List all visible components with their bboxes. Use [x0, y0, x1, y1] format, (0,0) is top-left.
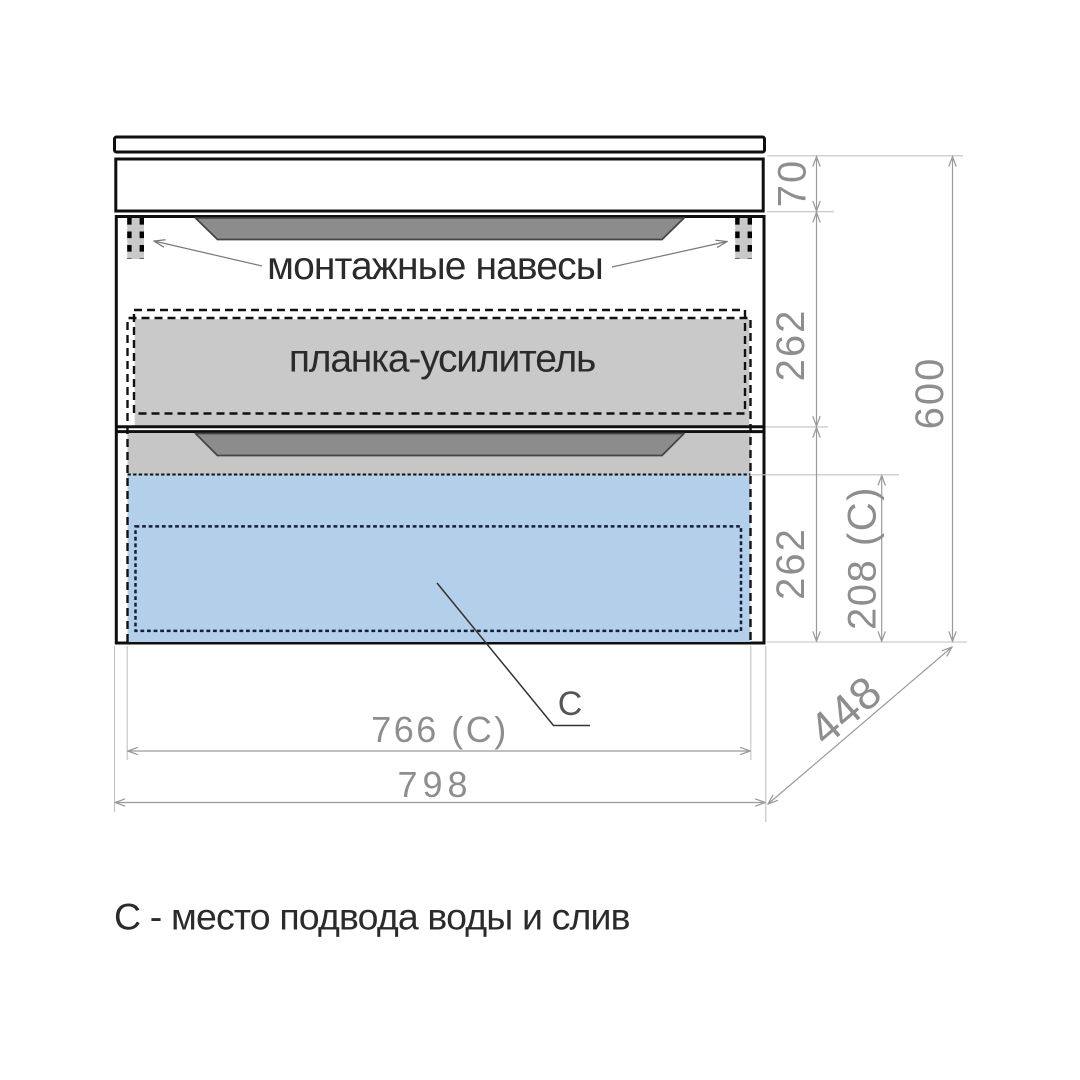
svg-text:планка-усилитель: планка-усилитель — [289, 338, 595, 381]
svg-text:C: C — [558, 685, 583, 723]
svg-text:766 (C): 766 (C) — [371, 709, 509, 750]
svg-text:600: 600 — [908, 357, 952, 430]
svg-text:262: 262 — [769, 309, 813, 382]
svg-text:монтажные навесы: монтажные навесы — [267, 245, 603, 288]
svg-text:798: 798 — [397, 764, 472, 805]
svg-text:208 (C): 208 (C) — [841, 486, 885, 630]
svg-text:С - место подвода воды и слив: С - место подвода воды и слив — [114, 896, 630, 938]
svg-text:262: 262 — [769, 527, 813, 600]
svg-text:70: 70 — [771, 159, 815, 208]
